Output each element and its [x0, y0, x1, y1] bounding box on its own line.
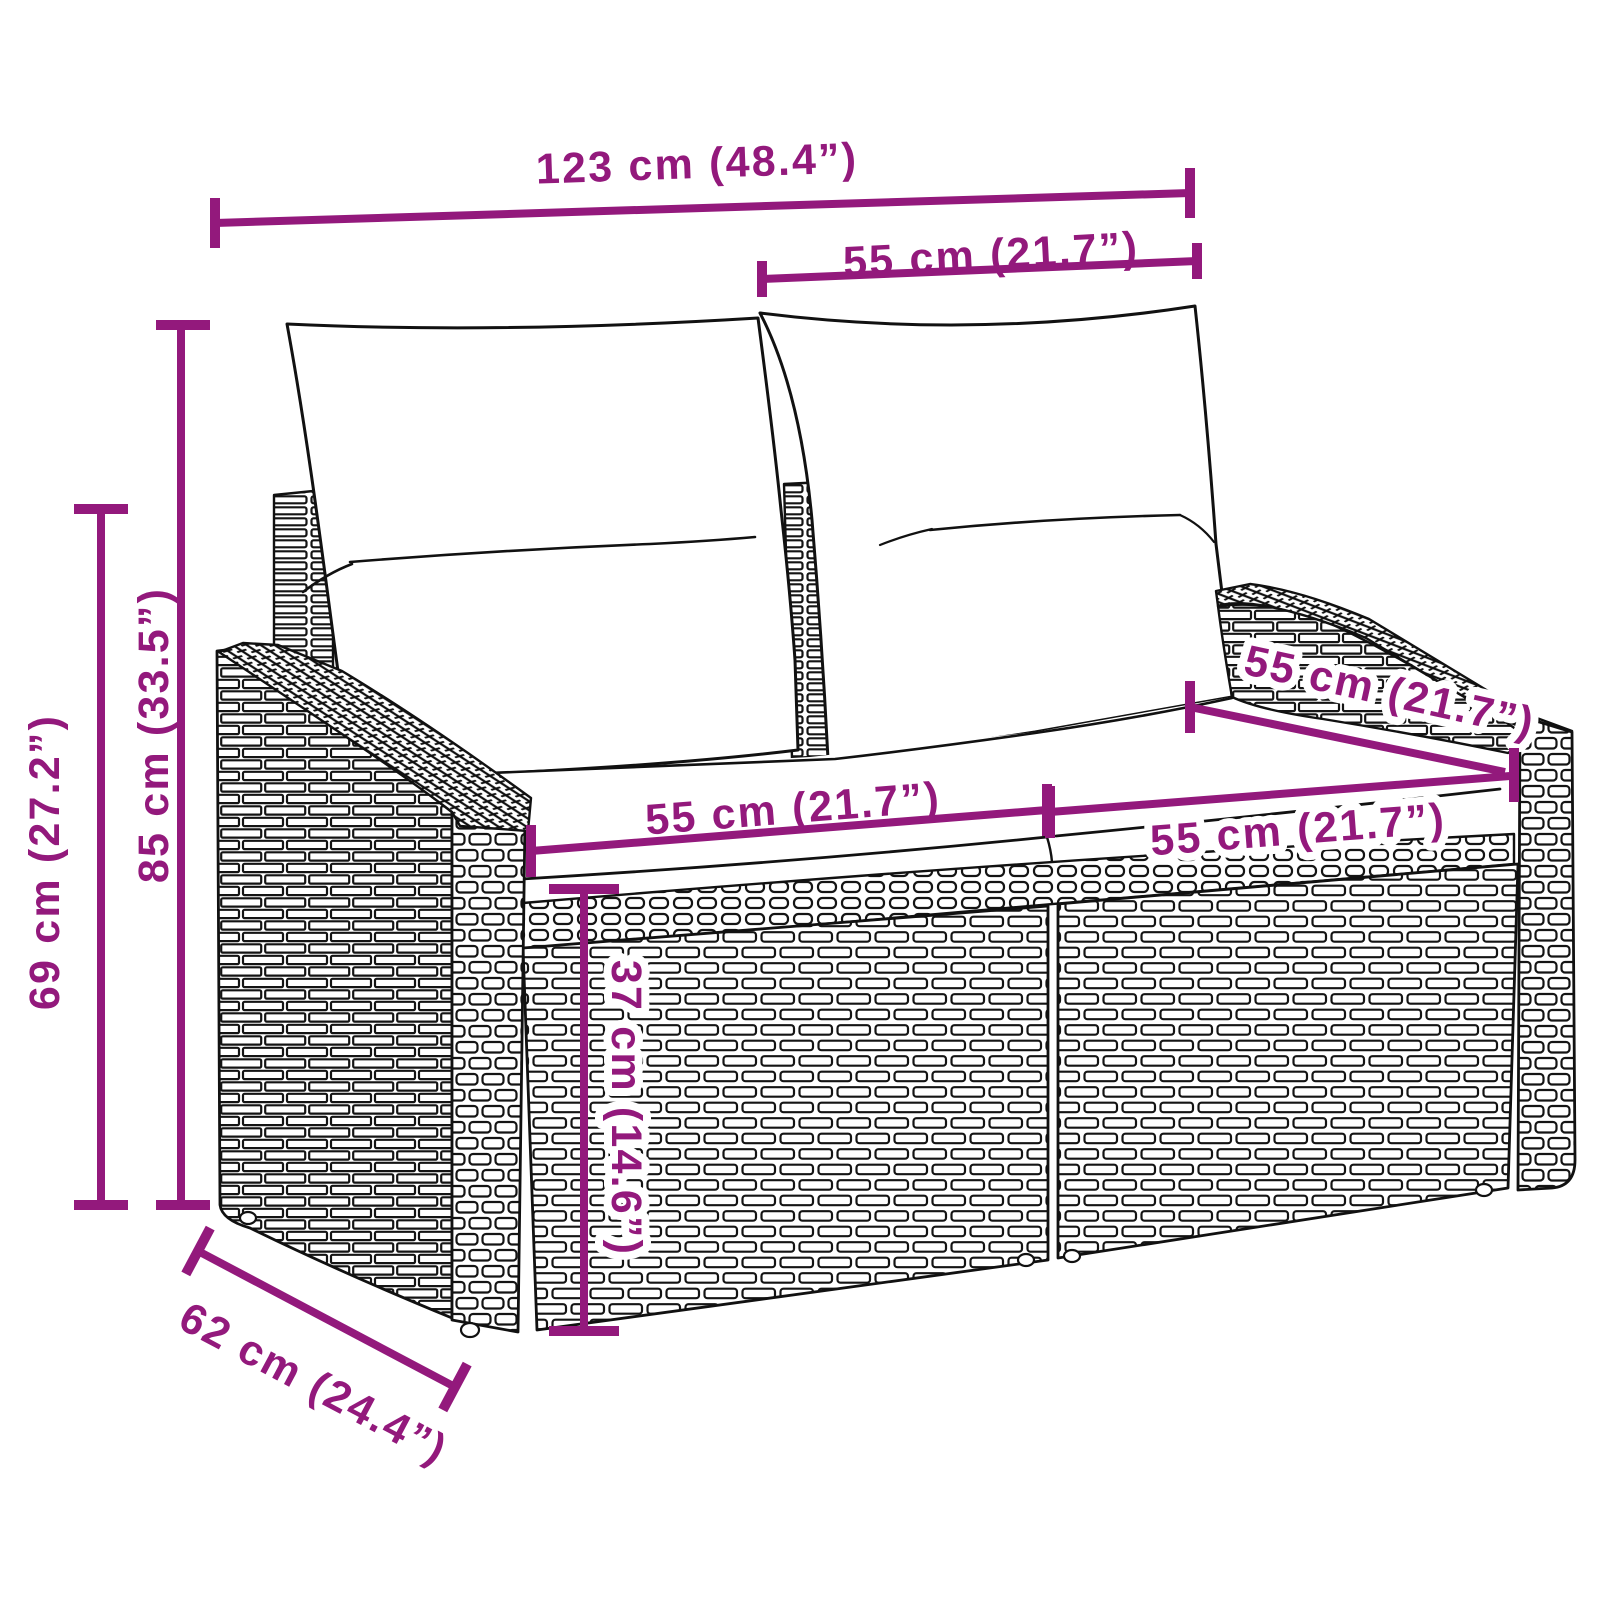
svg-text:37 cm (14.6”): 37 cm (14.6”)	[602, 960, 650, 1256]
svg-text:85 cm (33.5”): 85 cm (33.5”)	[130, 587, 178, 883]
svg-text:69 cm (27.2”): 69 cm (27.2”)	[21, 714, 69, 1010]
